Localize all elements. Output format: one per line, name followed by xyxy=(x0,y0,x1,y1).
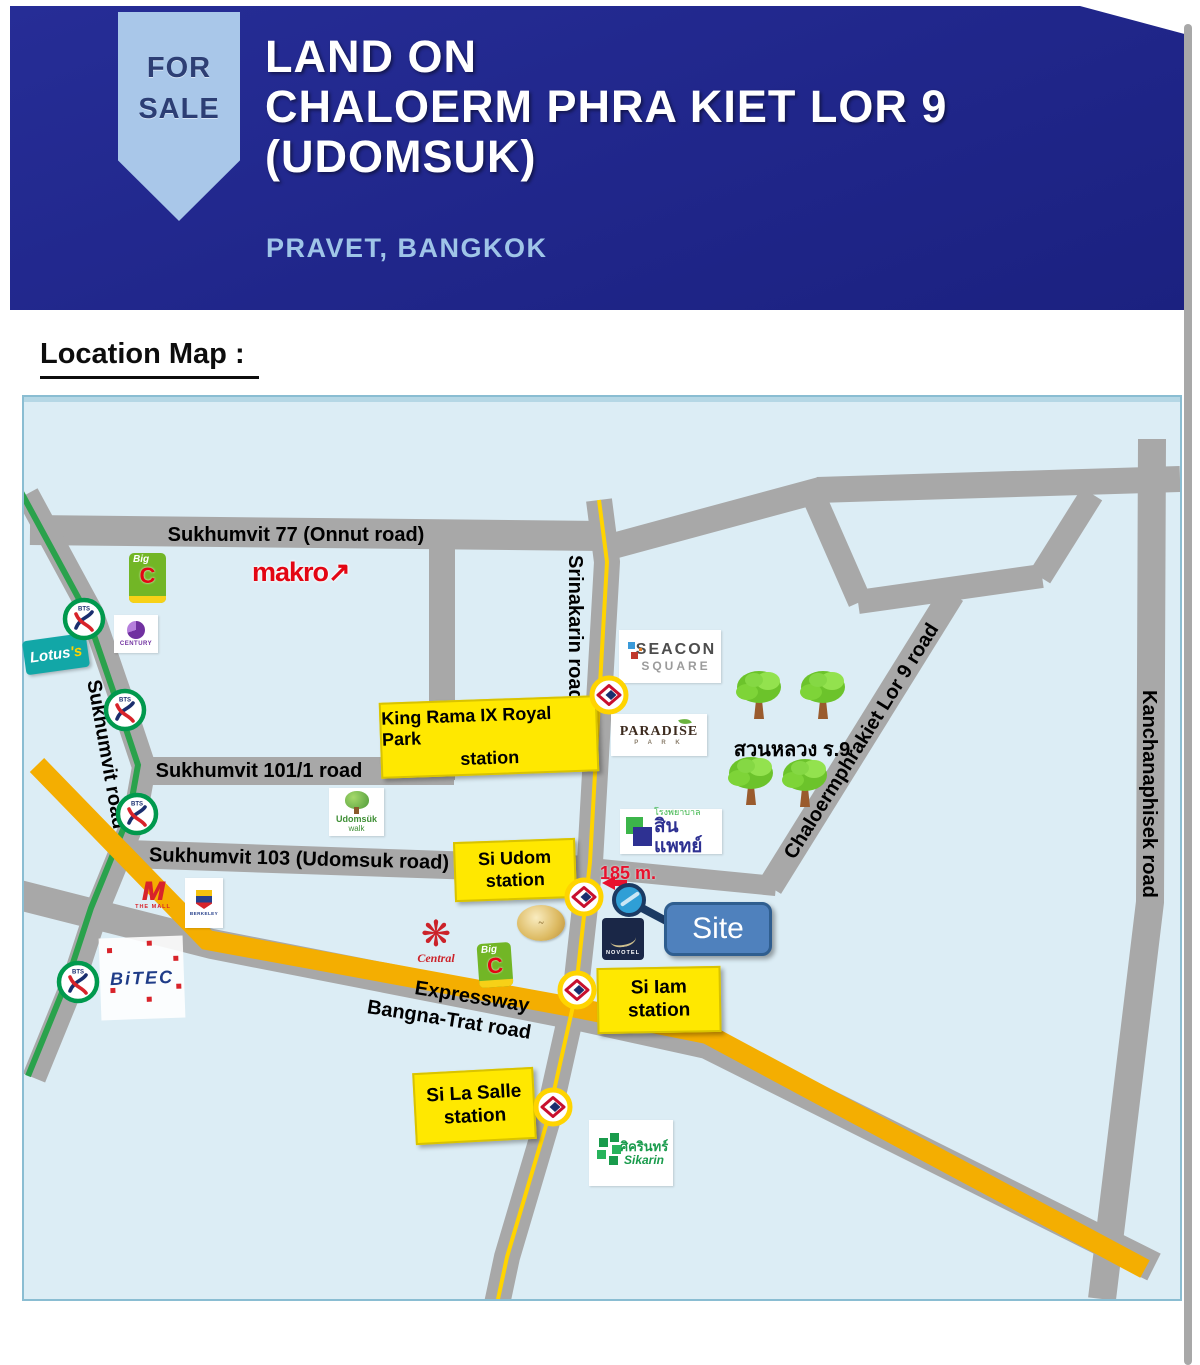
hospital-cross-icon xyxy=(624,815,652,849)
page-title: LAND ON CHALOERM PHRA KIET LOR 9 (UDOMSU… xyxy=(265,32,1125,182)
udomsuk-walk-logo: Udomsük walk xyxy=(329,788,384,836)
big-c-logo: Big C xyxy=(477,942,514,988)
tree-icon xyxy=(798,668,848,722)
paradise-park-logo: PARADISE P A R K xyxy=(611,714,707,756)
century-logo: CENTURY xyxy=(114,615,158,653)
makro-logo: makro↗ xyxy=(252,557,350,588)
berkeley-logo: BERKELEY xyxy=(185,878,223,928)
big-c-logo: Big C xyxy=(129,553,166,603)
mrt-station-icon xyxy=(589,675,629,715)
location-map: Sukhumvit 77 (Onnut road) Sukhumvit road… xyxy=(22,395,1182,1301)
ribbon-line2: SALE xyxy=(118,89,240,130)
station-label-si-udom: Si Udom station xyxy=(453,838,577,902)
header-banner: FOR SALE LAND ON CHALOERM PHRA KIET LOR … xyxy=(10,6,1190,310)
seacon-square-logo: SEACON SQUARE xyxy=(619,630,721,683)
flyer-page: FOR SALE LAND ON CHALOERM PHRA KIET LOR … xyxy=(0,0,1200,1365)
sinphaet-hospital-logo: โรงพยาบาล สินแพทย์ xyxy=(620,809,722,854)
central-logo: ❋ Central xyxy=(410,917,462,977)
page-subtitle: PRAVET, BANGKOK xyxy=(266,233,548,264)
bitec-logo: BiTEC xyxy=(99,936,186,1021)
novotel-arc-icon xyxy=(609,930,637,949)
station-label-king-rama: King Rama IX Royal Park station xyxy=(379,695,600,779)
site-location-marker xyxy=(612,883,646,917)
bts-station-icon: BTS xyxy=(62,597,106,641)
station-label-si-la-salle: Si La Salle station xyxy=(412,1067,537,1145)
park-label: สวนหลวง ร.9 xyxy=(712,733,872,765)
sikarin-logo: ศิครินทร์ Sikarin xyxy=(589,1120,673,1186)
svg-text:BTS: BTS xyxy=(131,802,143,808)
road-label-srinakarin: Srinakarin road xyxy=(563,555,586,702)
bts-station-icon: BTS xyxy=(115,792,159,836)
road-label-sukhumvit77: Sukhumvit 77 (Onnut road) xyxy=(166,524,426,547)
the-mall-logo: M THE MALL xyxy=(132,878,174,916)
tree-icon xyxy=(734,668,784,722)
svg-text:BTS: BTS xyxy=(119,698,131,704)
bts-station-icon: BTS xyxy=(56,960,100,1004)
ribbon-line1: FOR xyxy=(118,48,240,89)
for-sale-ribbon: FOR SALE xyxy=(118,12,240,221)
makro-arrow-icon: ↗ xyxy=(328,557,350,587)
novotel-logo: NOVOTEL xyxy=(602,918,644,960)
svg-text:BTS: BTS xyxy=(78,607,90,613)
crest-icon xyxy=(196,890,212,909)
station-label-si-iam: Si Iam station xyxy=(596,966,721,1034)
mrt-station-icon xyxy=(564,877,604,917)
site-callout: Site xyxy=(664,902,772,956)
road-label-kanchanaphisek: Kanchanaphisek road xyxy=(1137,690,1160,898)
central-flower-icon: ❋ xyxy=(410,917,462,951)
section-heading: Location Map : xyxy=(40,338,259,379)
sikarin-blocks-icon xyxy=(599,1138,608,1147)
bts-station-icon: BTS xyxy=(103,688,147,732)
road-label-sukhumvit101: Sukhumvit 101/1 road xyxy=(129,760,389,783)
scrollbar-thumb[interactable] xyxy=(1184,24,1192,1365)
mrt-station-icon xyxy=(533,1087,573,1127)
mrt-station-icon xyxy=(557,970,597,1010)
svg-text:BTS: BTS xyxy=(72,970,84,976)
gold-oval-logo: ~ xyxy=(517,905,565,941)
century-swirl-icon xyxy=(127,621,145,639)
